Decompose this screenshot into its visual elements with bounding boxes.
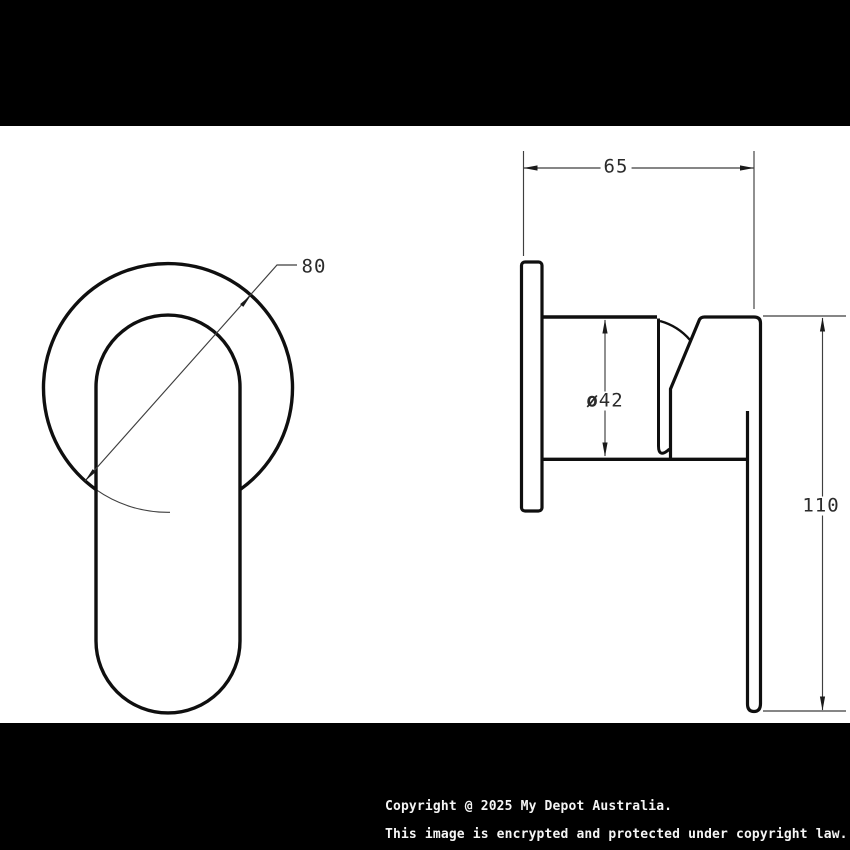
dim-42-label: ø42 <box>583 392 626 411</box>
dim-80-arrow-upper <box>240 295 251 307</box>
diameter-symbol: ø <box>586 390 598 412</box>
dim-42-arrow-top <box>602 320 607 334</box>
dim-110-label: 110 <box>799 497 842 516</box>
dim-80-label: 80 <box>299 258 330 277</box>
dim-65-arrow-right <box>740 165 754 170</box>
dome-arc <box>660 321 690 340</box>
side-view <box>522 262 761 712</box>
dimension-65 <box>524 151 755 309</box>
copyright-line-1: Copyright @ 2025 My Depot Australia. <box>385 799 672 814</box>
dim-42-value: 42 <box>599 390 624 412</box>
dim-110-arrow-bottom <box>820 697 825 711</box>
wall-plate <box>522 262 543 511</box>
dim-65-arrow-left <box>524 165 538 170</box>
dim-42-arrow-bottom <box>602 443 607 457</box>
dim-110-arrow-top <box>820 318 825 332</box>
escutcheon-circle-hidden <box>96 490 170 513</box>
dim-80-leader <box>85 265 297 481</box>
body-right-edge <box>659 319 670 454</box>
copyright-line-2: This image is encrypted and protected un… <box>385 827 848 842</box>
front-view <box>44 264 297 713</box>
escutcheon-circle <box>44 264 293 490</box>
dim-80-arrow-lower <box>85 469 96 481</box>
handle-front <box>96 315 240 713</box>
dim-65-label: 65 <box>601 158 632 177</box>
dimension-42 <box>602 320 607 457</box>
handle-side <box>671 317 761 712</box>
